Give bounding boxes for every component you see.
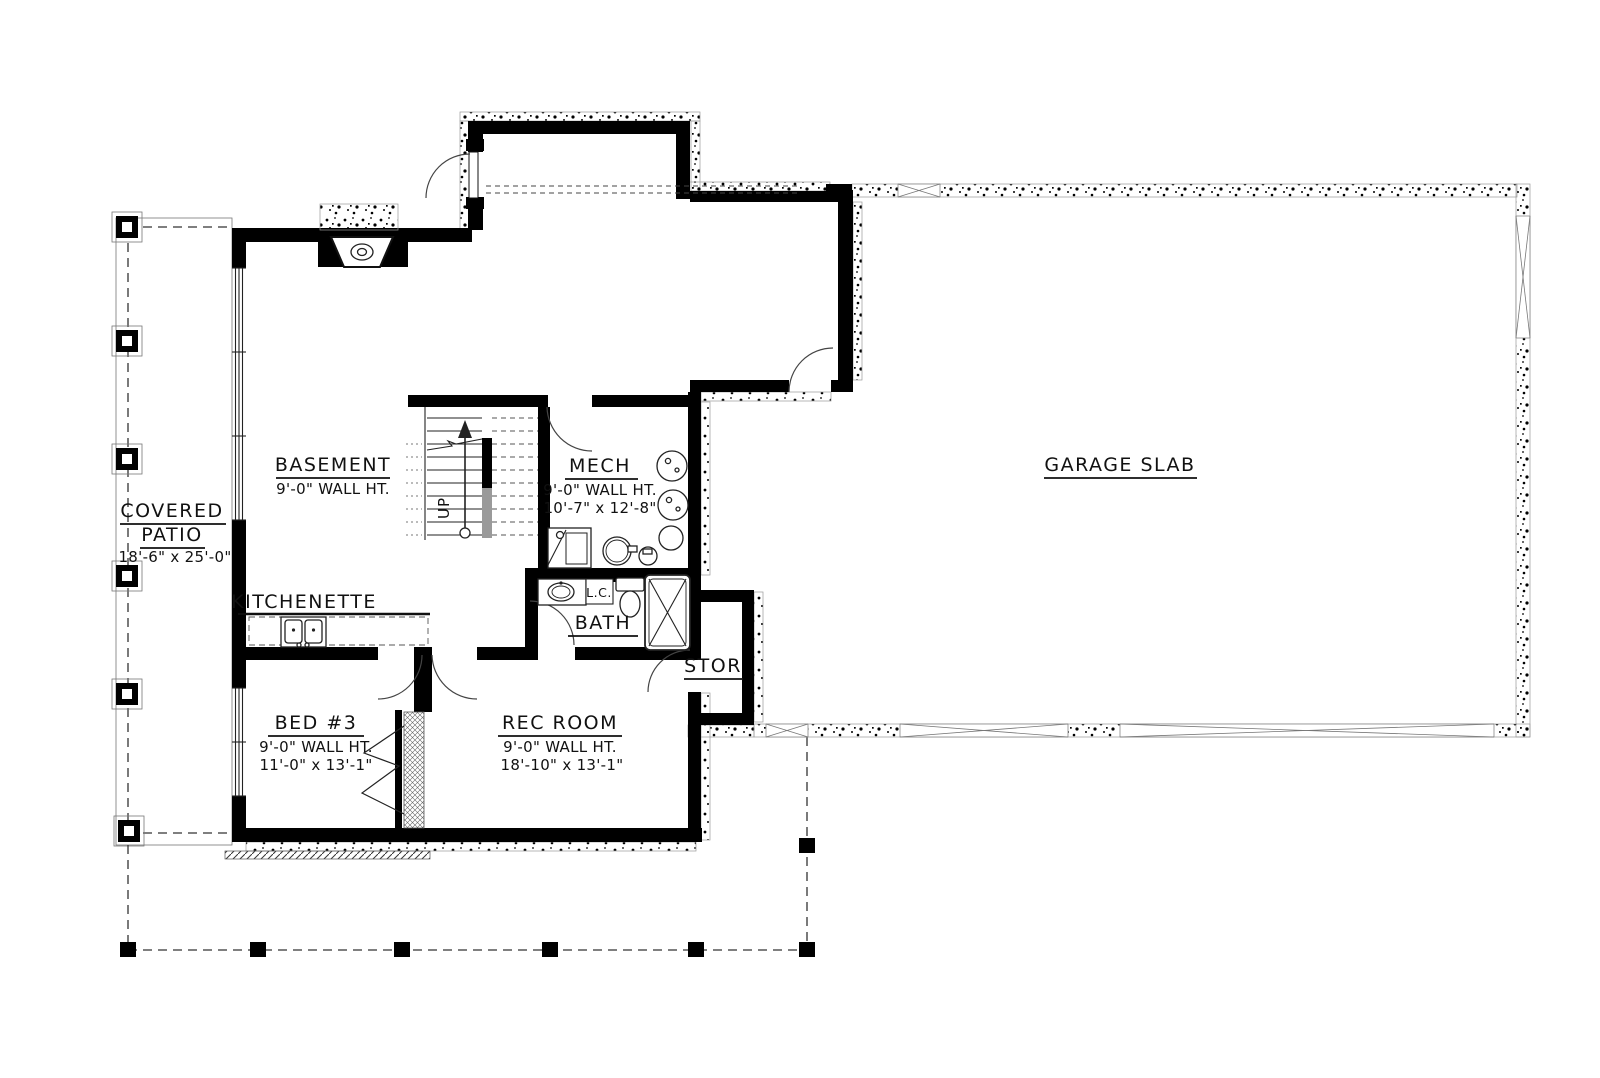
patio-post xyxy=(112,679,142,709)
sump-pit xyxy=(603,537,637,565)
basement-label: BASEMENT 9'-0" WALL HT. xyxy=(275,454,391,498)
kitchenette-counter xyxy=(249,617,428,645)
stair-arrow-origin xyxy=(460,528,470,538)
deck-posts xyxy=(120,838,815,957)
stair-stringer-lower xyxy=(482,488,492,538)
flex-room-door-arc xyxy=(789,348,833,392)
pressure-tank xyxy=(659,526,683,550)
mech-door-arc xyxy=(547,407,592,451)
stor-name: STOR xyxy=(684,655,742,677)
shower xyxy=(645,575,690,650)
water-heater xyxy=(657,451,687,481)
patio-post xyxy=(114,816,144,846)
patio-post xyxy=(112,444,142,474)
patio-label-line2: PATIO xyxy=(141,524,202,546)
patio-post xyxy=(112,212,142,242)
mech-label: MECH 9'-0" WALL HT. 10'-7" x 12'-8" xyxy=(543,455,657,517)
stair-stringer-upper xyxy=(482,438,492,488)
mech-ht: 9'-0" WALL HT. xyxy=(543,481,657,499)
floor-plan-page: COVERED PATIO 18'-6" x 25'-0" xyxy=(0,0,1600,1078)
rec-name: REC ROOM xyxy=(502,712,618,734)
x-brace xyxy=(766,724,808,737)
laundry-tub xyxy=(548,528,591,568)
deck-post xyxy=(799,838,815,853)
bath-name: BATH xyxy=(575,612,631,634)
deck-post xyxy=(394,942,410,957)
deck-post xyxy=(688,942,704,957)
stair-treads-dotted xyxy=(406,444,422,535)
patio-dims: 18'-6" x 25'-0" xyxy=(118,548,231,566)
rec-room-door-arc xyxy=(432,655,477,699)
bath-vanity xyxy=(538,579,586,605)
garage-name: GARAGE SLAB xyxy=(1044,454,1195,476)
deck-post xyxy=(799,942,815,957)
bed3-ht: 9'-0" WALL HT. xyxy=(259,738,373,756)
bed3-name: BED #3 xyxy=(275,712,358,734)
stair-arrow-head xyxy=(458,420,472,438)
x-brace xyxy=(900,724,1068,737)
patio-post xyxy=(112,326,142,356)
kitchen-sink xyxy=(281,617,326,647)
x-brace xyxy=(1516,216,1530,338)
rec-room-label: REC ROOM 9'-0" WALL HT. 18'-10" x 13'-1" xyxy=(498,712,623,774)
deck-post xyxy=(250,942,266,957)
stair-treads-dashed xyxy=(492,418,538,535)
garage-label: GARAGE SLAB xyxy=(1044,454,1197,478)
deck-post xyxy=(542,942,558,957)
bath-label: BATH xyxy=(568,612,638,636)
garage-north-foundation xyxy=(852,184,1517,197)
x-brace xyxy=(898,184,940,197)
bumpout-exterior-door xyxy=(426,152,478,198)
basement-name: BASEMENT xyxy=(275,454,391,476)
covered-patio: COVERED PATIO 18'-6" x 25'-0" xyxy=(112,212,232,846)
floor-plan-canvas: COVERED PATIO 18'-6" x 25'-0" xyxy=(0,0,1600,1078)
stairs: UP xyxy=(406,407,538,540)
stor-label: STOR xyxy=(684,655,743,679)
bed3-label: BED #3 9'-0" WALL HT. 11'-0" x 13'-1" xyxy=(259,712,373,774)
linen-closet: L.C. xyxy=(586,579,613,604)
x-brace xyxy=(1120,724,1494,737)
mech-dims: 10'-7" x 12'-8" xyxy=(543,499,656,517)
basement-ht: 9'-0" WALL HT. xyxy=(276,480,390,498)
bed3-dims: 11'-0" x 13'-1" xyxy=(259,756,372,774)
mech-name: MECH xyxy=(569,455,631,477)
deck-post xyxy=(120,942,136,957)
basement-west-window xyxy=(232,268,246,520)
kitchenette-label: KITCHENETTE xyxy=(231,591,377,613)
floor-drain xyxy=(639,547,657,565)
bed3-west-window xyxy=(232,688,246,796)
rec-ht: 9'-0" WALL HT. xyxy=(503,738,617,756)
rec-dims: 18'-10" x 13'-1" xyxy=(501,756,624,774)
patio-label-line1: COVERED xyxy=(120,500,223,522)
south-hatch-band xyxy=(225,851,430,859)
water-heater xyxy=(658,490,688,520)
stairs-up-label: UP xyxy=(435,497,453,519)
linen-closet-label: L.C. xyxy=(586,585,612,600)
kitchenette: KITCHENETTE xyxy=(231,591,430,647)
foundation-stipple xyxy=(246,112,1530,851)
